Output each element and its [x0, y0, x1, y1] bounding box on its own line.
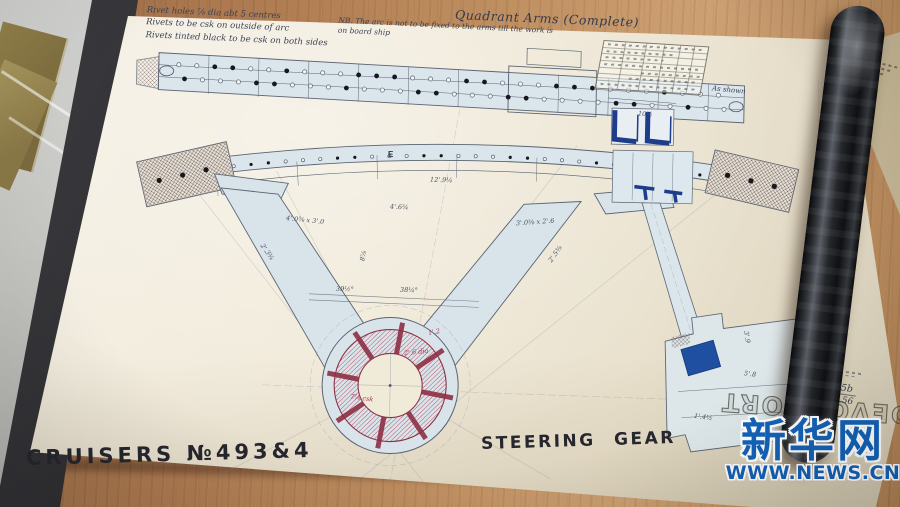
- dimension-annotation: E: [388, 150, 393, 159]
- news-url-text: WWW.NEWS.CN: [721, 464, 900, 483]
- dimension-annotation: 10½: [638, 110, 653, 119]
- dimension-annotation: 38¼°: [400, 286, 418, 295]
- dimension-annotation: 12'.9¼: [430, 176, 453, 185]
- xinhua-watermark: 新华网 WWW.NEWS.CN: [721, 418, 900, 483]
- xinhua-logo-text: 新华网: [721, 418, 900, 464]
- arc-left-fitting: [137, 142, 237, 207]
- dimension-annotation: 5'.8: [744, 369, 757, 379]
- arc-right-fitting: [705, 150, 799, 212]
- rivet-schedule-table: [595, 40, 710, 95]
- dimension-annotation: 39½°: [336, 285, 354, 294]
- dimension-annotation: 4'.6¾: [390, 203, 409, 212]
